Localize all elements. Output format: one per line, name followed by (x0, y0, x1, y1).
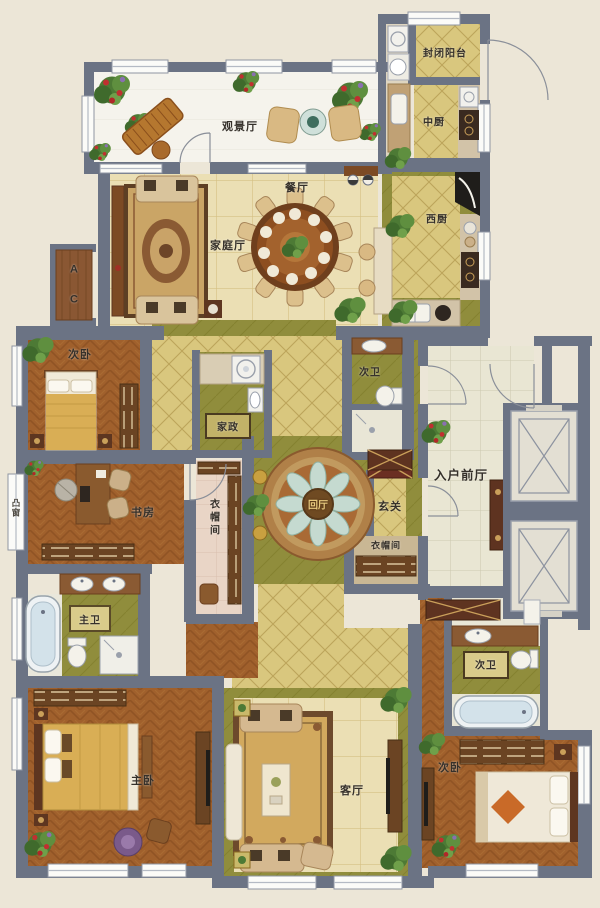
toilet-2 (376, 386, 394, 406)
tv-cabinet (388, 740, 402, 832)
closet-stool (200, 584, 218, 604)
hanger-rail-top (198, 462, 240, 474)
closet-strip (34, 690, 126, 706)
bed-bench (142, 736, 152, 798)
entryway-furniture (368, 450, 412, 470)
floor-plan-svg (0, 0, 600, 908)
side-cabinet-strip (112, 186, 124, 316)
hall-chair (253, 526, 267, 540)
cooktop-2 (461, 252, 479, 288)
pot (435, 305, 451, 321)
bar-counter (374, 228, 392, 314)
bath-cabinet (524, 600, 540, 624)
small-appliance (464, 222, 476, 234)
corridor-stem-floor (258, 584, 344, 632)
toilet (68, 645, 86, 667)
wardrobe (120, 384, 138, 448)
utility-sink (391, 94, 407, 124)
elevators (503, 403, 585, 619)
bath-plaque-2 (464, 652, 508, 678)
table-plate (307, 116, 319, 128)
bar-stool (359, 244, 375, 260)
desk-chair (106, 496, 130, 520)
bath-plaque (70, 606, 110, 631)
coat-rack (356, 556, 416, 576)
bed2-headboard (570, 772, 578, 842)
hall-chair (253, 470, 267, 484)
rotunda-center (303, 489, 333, 519)
rattan-chair (266, 106, 300, 144)
elevator-1 (511, 411, 577, 501)
entryway-floor (374, 478, 406, 536)
console (344, 166, 378, 176)
bath-mid-shower-floor (352, 410, 402, 452)
kitchen-sink (460, 87, 478, 107)
enclosed-balcony-floor (412, 24, 480, 77)
master-suite-connector (186, 622, 258, 678)
bar-stool (359, 280, 375, 296)
sofa-left (226, 744, 242, 840)
elevator-2 (511, 521, 577, 611)
corridor-bar-floor (232, 628, 408, 688)
cloakroom-entry-furniture (356, 556, 416, 576)
toilet-3 (511, 651, 531, 669)
ac-closet (56, 250, 92, 320)
chinese-kitchen-floor (414, 85, 458, 158)
bed3-headboard (34, 724, 43, 810)
bed-duvet (46, 394, 96, 450)
hanger-rail-side (228, 476, 241, 604)
wardrobe-2 (460, 740, 544, 764)
sofa-bottom (136, 296, 198, 324)
coffee-table (262, 764, 290, 816)
housekeeping-plaque (206, 414, 250, 438)
bookshelf (42, 544, 134, 560)
monitor (80, 486, 90, 502)
rattan-chair (328, 104, 362, 142)
floor-plan-page: 观景厅 封闭阳台 中厨 西厨 餐厅 家庭厅 A C 次卧 家政 次卫 入户前厅 … (0, 0, 600, 908)
round-stool (152, 141, 170, 159)
